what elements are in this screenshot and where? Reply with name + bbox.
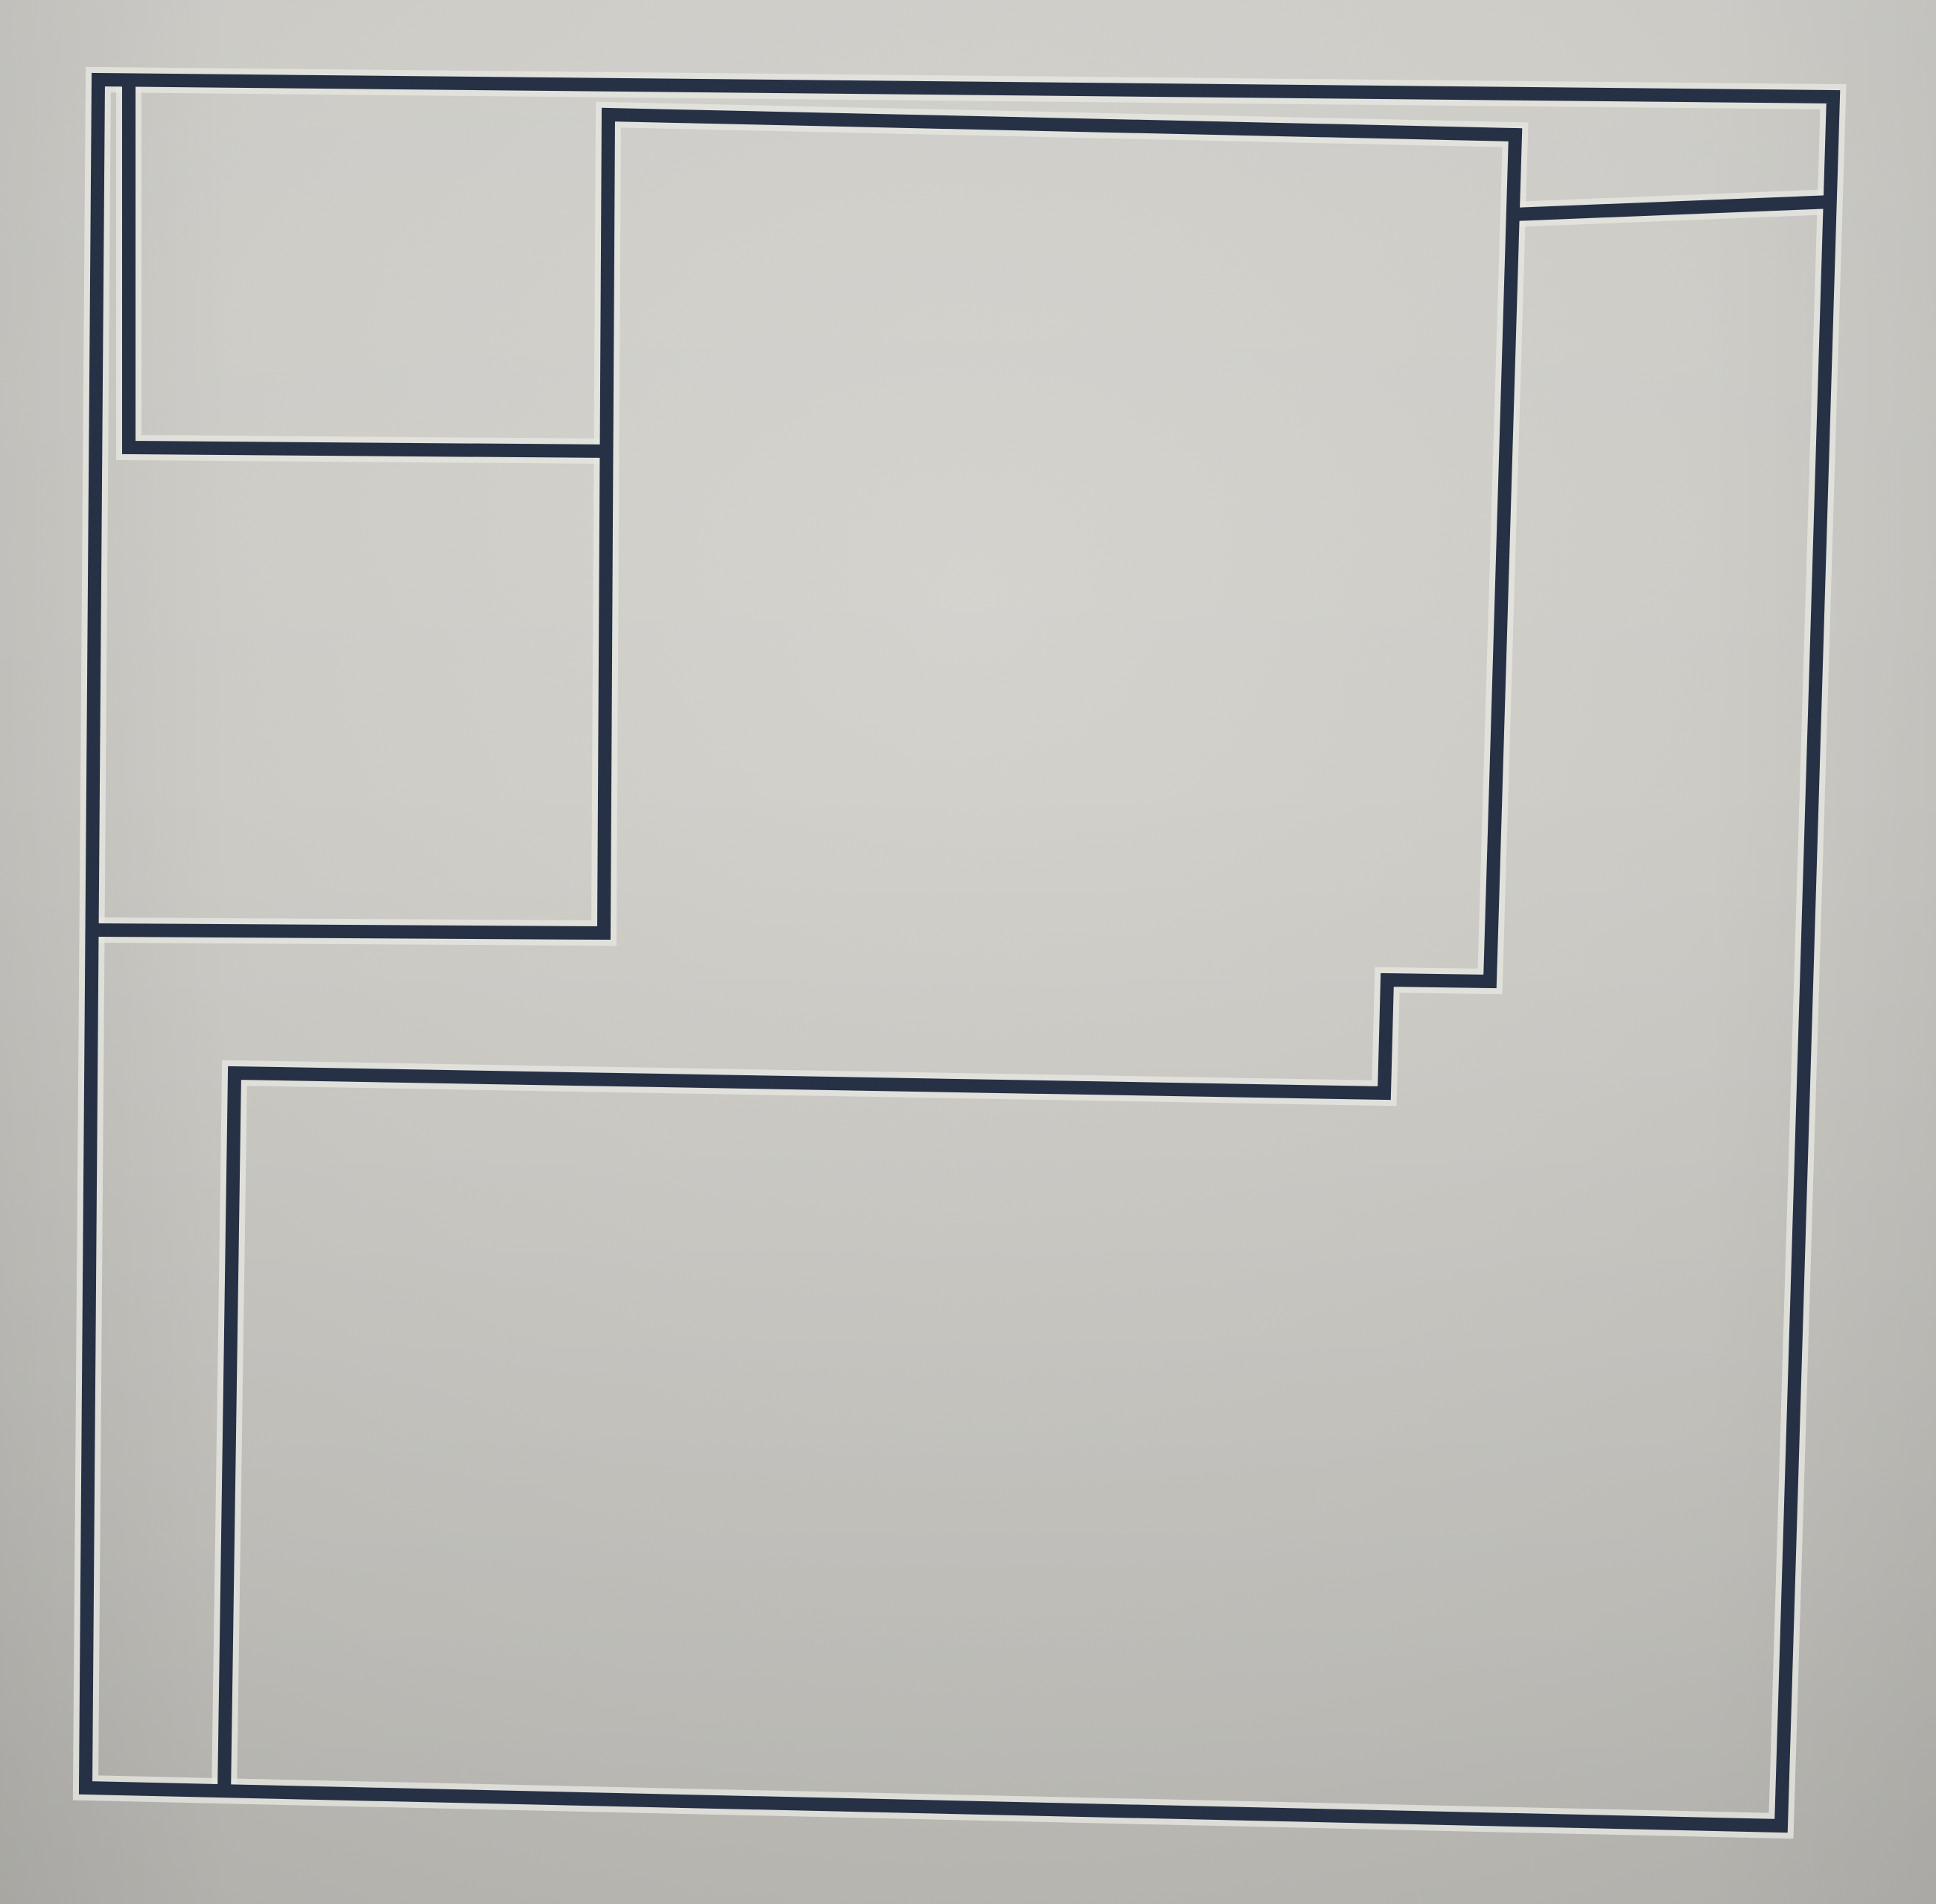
artwork-photo — [0, 0, 1936, 1904]
line-composition — [0, 0, 1936, 1904]
photo-grain-overlay — [0, 0, 1936, 1904]
